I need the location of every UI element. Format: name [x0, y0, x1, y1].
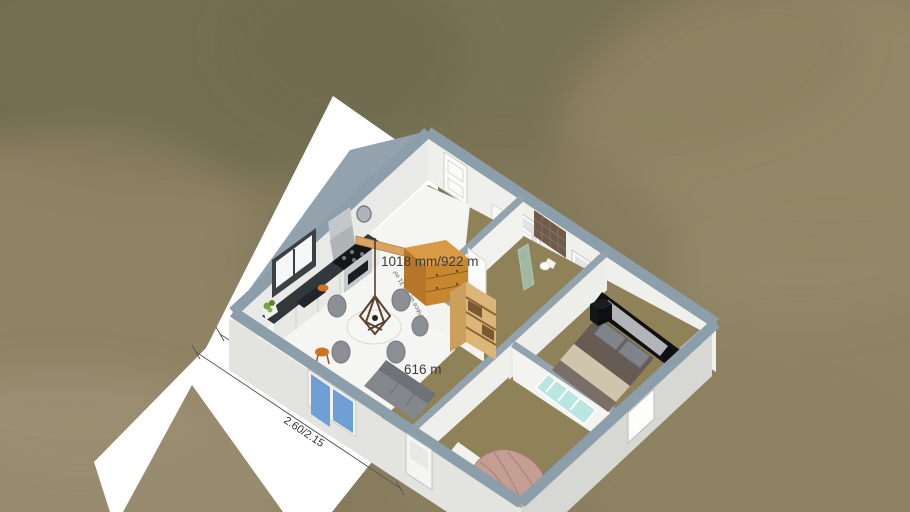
fruit-bowl-icon: [318, 285, 329, 292]
wall-clock-icon: [357, 206, 371, 222]
overlay-small-dim: 616 m: [404, 362, 442, 377]
overlay-furniture-dim: 1018 mm/922 m: [381, 254, 479, 269]
3d-model-viewport[interactable]: 1.98 2.60/2.15: [0, 0, 910, 512]
scene-canvas: 1.98 2.60/2.15: [0, 0, 910, 512]
